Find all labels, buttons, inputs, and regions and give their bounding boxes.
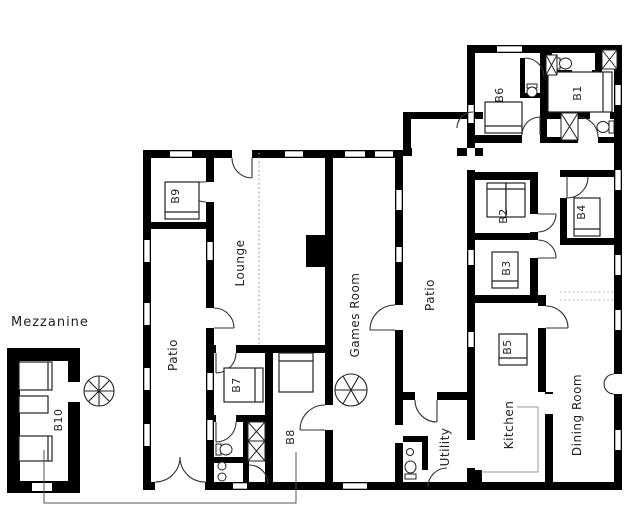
room-label-games-room: Games Room: [348, 273, 362, 358]
door-lounge-entrance: [232, 158, 252, 178]
shower-icon: [561, 113, 578, 140]
floor-plan-drawing: Mezzanine B10 B9 Lounge Patio Games Room…: [0, 0, 640, 512]
toilet-icon: [597, 121, 614, 133]
door-b4: [567, 177, 588, 198]
spiral-staircase-icon: [84, 376, 114, 406]
sink-icon: [218, 473, 226, 481]
shower-icon: [546, 55, 557, 75]
room-label-b8: B8: [284, 429, 297, 445]
mezzanine-title: Mezzanine: [11, 315, 89, 330]
door-b7-bath: [216, 422, 236, 442]
room-label-b10: B10: [52, 408, 65, 431]
door-b6: [522, 117, 540, 135]
door-b8-games: [300, 405, 325, 430]
wall-openings: [68, 70, 622, 490]
door-patio-lounge: [214, 308, 234, 328]
shower-icon: [602, 50, 617, 69]
door-b3: [538, 240, 556, 258]
room-label-dining-room: Dining Room: [570, 374, 584, 456]
french-window-dining: [604, 374, 614, 394]
shower-icon: [248, 441, 265, 461]
bed-icon: [19, 362, 52, 390]
room-label-b7: B7: [230, 377, 243, 393]
bed-icon: [19, 436, 52, 461]
sink-icon: [407, 449, 414, 456]
room-label-lounge: Lounge: [233, 239, 247, 286]
room-label-b5: B5: [501, 339, 514, 355]
room-label-patio-right: Patio: [423, 279, 437, 311]
floor-plan: Mezzanine B10 B9 Lounge Patio Games Room…: [0, 0, 640, 512]
double-door-patio: [155, 457, 205, 482]
toilet-icon: [405, 461, 416, 479]
fireplace: [306, 235, 325, 267]
shower-icon: [248, 422, 265, 441]
toilet-icon: [527, 84, 537, 97]
sink-icon: [218, 462, 226, 470]
room-label-kitchen: Kitchen: [502, 401, 516, 450]
room-label-utility: Utility: [438, 428, 452, 467]
bed-icon: [485, 102, 522, 133]
door-bath-b1: [578, 117, 598, 137]
door-patio-utility: [415, 400, 437, 422]
door-b5: [546, 306, 568, 328]
cupboard-icon: [19, 396, 48, 413]
room-label-patio-left: Patio: [166, 339, 180, 371]
toilet-icon: [216, 444, 232, 455]
room-label-b6: B6: [493, 87, 506, 103]
door-games-patio: [370, 305, 395, 330]
room-label-b1: B1: [571, 85, 584, 101]
room-label-b4: B4: [575, 204, 588, 220]
walls: [7, 45, 622, 493]
bed-icon: [279, 353, 313, 392]
dotted-line: [560, 292, 614, 300]
room-label-b9: B9: [169, 188, 182, 204]
bath-fixtures: [216, 58, 614, 481]
room-label-b2: B2: [497, 208, 510, 224]
spiral-staircase-icon: [335, 374, 367, 406]
door-b2: [538, 214, 556, 232]
room-label-b3: B3: [500, 260, 513, 276]
